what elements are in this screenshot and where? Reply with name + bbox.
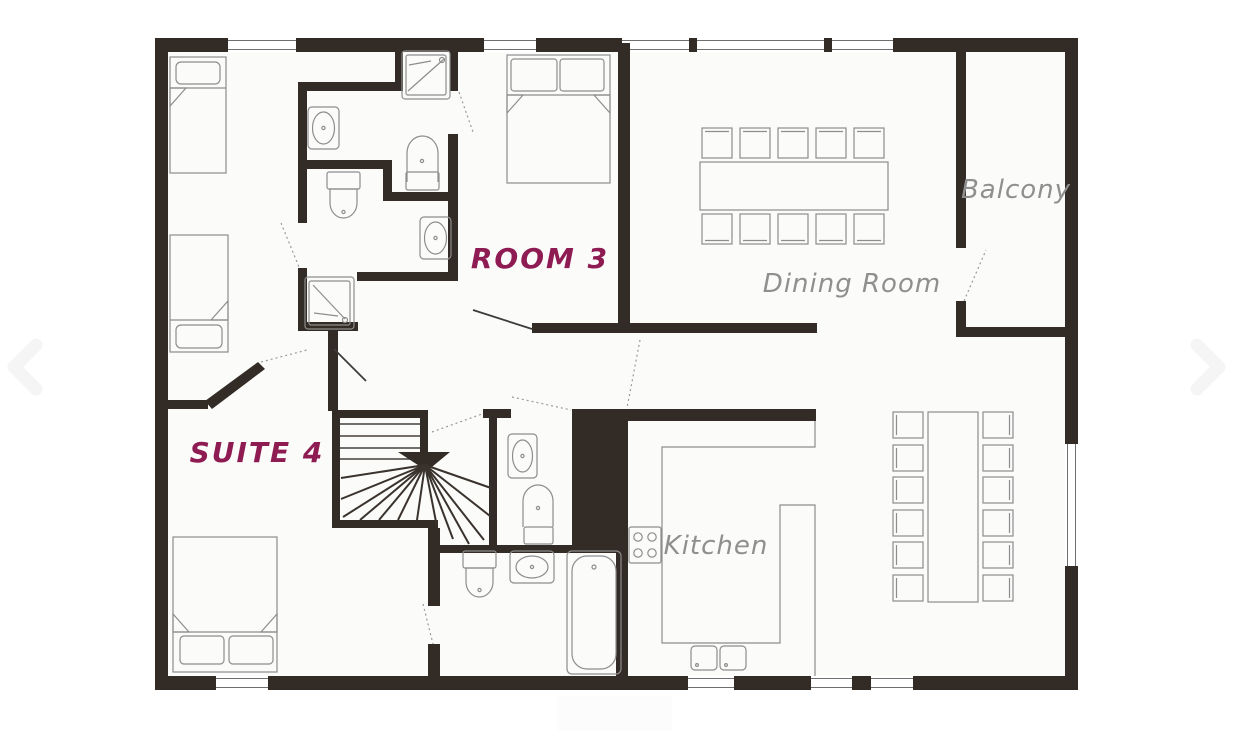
chevron-right-icon[interactable]: [1197, 345, 1219, 389]
chevron-left-icon[interactable]: [14, 345, 36, 389]
floor-plan-svg: ROOM 3 SUITE 4 Dining Room Balcony Kitch…: [0, 0, 1233, 730]
dining-label: Dining Room: [763, 269, 941, 299]
chimney-mass: [572, 409, 628, 547]
balcony-label: Balcony: [961, 175, 1071, 205]
room3-label: ROOM 3: [471, 242, 609, 275]
floor-plan-viewer: ROOM 3 SUITE 4 Dining Room Balcony Kitch…: [0, 0, 1233, 730]
kitchen-label: Kitchen: [664, 531, 769, 561]
bottom-strip: [558, 696, 672, 730]
suite4-label: SUITE 4: [190, 436, 325, 469]
